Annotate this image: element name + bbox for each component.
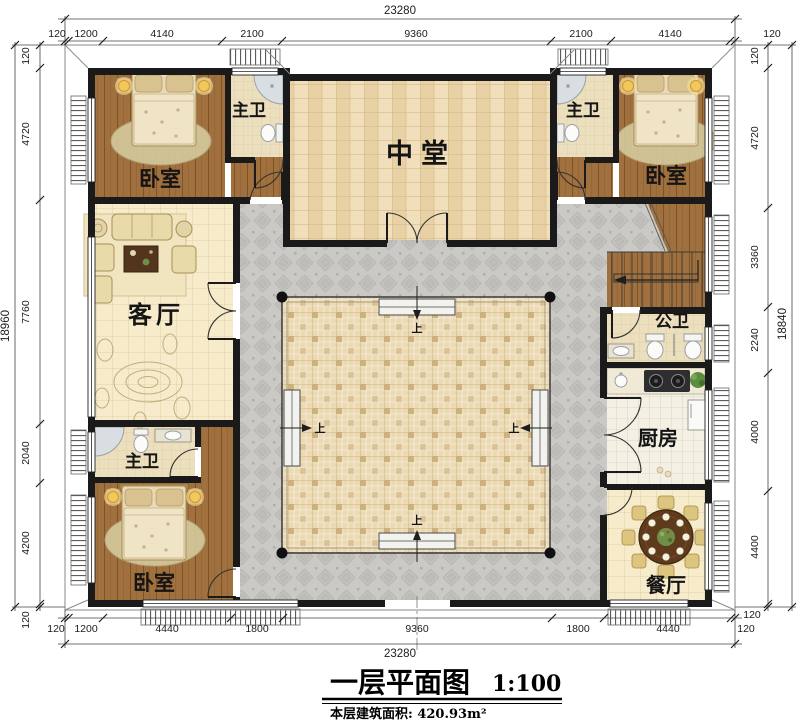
toilet-bowl <box>261 125 275 142</box>
railing <box>71 96 86 184</box>
floor-area-note: 本层建筑面积: 420.93m² <box>330 706 487 722</box>
railing <box>714 96 729 184</box>
bath-top-right-label: 主卫 <box>566 100 600 120</box>
step-up-label: 上 <box>412 321 423 335</box>
column-dot <box>545 292 556 303</box>
toilet-bowl <box>647 341 663 359</box>
sink <box>613 347 629 356</box>
step-up-label: 上 <box>412 513 423 527</box>
floor-plan-page: 主卫 卧室 中堂 主卫 卧室 客厅 公卫 厨房 主卫 卧室 餐厅 上 上 上 上 <box>0 0 800 722</box>
drawing-title: 一层平面图 <box>330 666 470 699</box>
dim-label: 2240 <box>749 328 761 352</box>
dim-label: 2100 <box>569 28 593 40</box>
hall-label: 中堂 <box>386 139 456 169</box>
dim-label: 3360 <box>749 245 761 269</box>
toilet-tank <box>557 124 564 142</box>
window <box>88 237 95 417</box>
bath-top-left-label: 主卫 <box>232 100 266 120</box>
window <box>232 68 278 75</box>
window <box>143 600 298 607</box>
kitchen-sink <box>615 375 627 387</box>
dim-left-total: 18960 <box>0 310 12 342</box>
window <box>705 327 712 360</box>
dim-top-total: 23280 <box>384 5 416 17</box>
dim-label: 4140 <box>150 28 174 40</box>
dim-label: 120 <box>763 28 781 40</box>
bedroom-bottom-left-label: 卧室 <box>133 571 175 595</box>
dim-label: 1200 <box>74 623 98 635</box>
kitchen-label: 厨房 <box>638 426 678 450</box>
coffee-table <box>124 246 158 272</box>
dim-bottom-total: 23280 <box>384 648 416 660</box>
bed-bottom-left <box>120 484 188 560</box>
toilet-tank <box>646 334 664 341</box>
dim-label: 2100 <box>240 28 264 40</box>
dim-label: 120 <box>47 623 65 635</box>
bed-top-left <box>130 70 198 146</box>
title-block: 一层平面图 1:100 本层建筑面积: 420.93m² <box>322 666 562 722</box>
drawing-scale: 1:100 <box>492 671 561 697</box>
living-label: 客厅 <box>128 301 184 329</box>
dim-label: 9360 <box>405 623 429 635</box>
dim-label: 4440 <box>155 623 179 635</box>
railing <box>714 325 729 362</box>
dim-label: 1200 <box>74 28 98 40</box>
entry-nook-bottom-left <box>201 427 233 483</box>
dining-set <box>622 496 708 578</box>
toilet-bowl <box>685 341 701 359</box>
window <box>88 432 95 472</box>
dim-right-total: 18840 <box>777 308 789 340</box>
column-dot <box>277 548 288 559</box>
plant <box>690 372 706 388</box>
dim-label: 4720 <box>749 126 761 150</box>
window <box>705 217 712 292</box>
step-up-label: 上 <box>315 421 326 435</box>
railing <box>71 495 86 585</box>
window <box>705 503 712 590</box>
centerpiece <box>657 528 675 546</box>
toilet-tank <box>276 124 283 142</box>
sofa-set <box>84 214 196 303</box>
dim-label: 4720 <box>20 122 32 146</box>
side-table <box>176 221 192 237</box>
dim-label: 2040 <box>20 441 32 465</box>
floor-plan-canvas: 主卫 卧室 中堂 主卫 卧室 客厅 公卫 厨房 主卫 卧室 餐厅 上 上 上 上 <box>0 0 800 722</box>
sofa-long <box>112 214 172 240</box>
dim-label: 7760 <box>20 300 32 324</box>
dim-label: 4440 <box>656 623 680 635</box>
railing <box>714 388 729 482</box>
dim-label: 4400 <box>749 535 761 559</box>
toilet-tank <box>134 429 148 435</box>
sink <box>165 431 181 440</box>
toilet-bowl <box>134 436 148 453</box>
dim-label: 120 <box>737 623 755 635</box>
dim-label: 120 <box>20 611 32 629</box>
dim-label: 120 <box>743 609 761 621</box>
window <box>610 600 688 607</box>
railing <box>71 430 86 474</box>
railing <box>714 501 729 592</box>
window <box>88 497 95 583</box>
dim-label: 4000 <box>749 420 761 444</box>
dim-label: 4200 <box>20 531 32 555</box>
bedroom-top-right-label: 卧室 <box>645 164 687 188</box>
dining-label: 餐厅 <box>646 573 686 597</box>
toilet-bowl <box>565 125 579 142</box>
armchair <box>172 246 196 273</box>
column-dot <box>277 292 288 303</box>
dim-label: 120 <box>48 28 66 40</box>
railing <box>558 49 608 65</box>
toilet-tank <box>684 334 702 341</box>
public-bath-label: 公卫 <box>655 312 689 331</box>
dim-label: 1800 <box>245 623 269 635</box>
bedroom-top-left-label: 卧室 <box>139 167 181 191</box>
step-up-label: 上 <box>509 421 520 435</box>
dim-label: 1800 <box>566 623 590 635</box>
window <box>705 390 712 480</box>
railing <box>714 215 729 294</box>
window <box>560 68 606 75</box>
dim-label: 9360 <box>404 28 428 40</box>
dim-label: 120 <box>749 47 761 65</box>
window <box>88 98 95 182</box>
dim-label: 4140 <box>658 28 682 40</box>
bath-bottom-left-label: 主卫 <box>125 451 159 471</box>
window <box>705 98 712 182</box>
dim-label: 120 <box>20 47 32 65</box>
column-dot <box>545 548 556 559</box>
